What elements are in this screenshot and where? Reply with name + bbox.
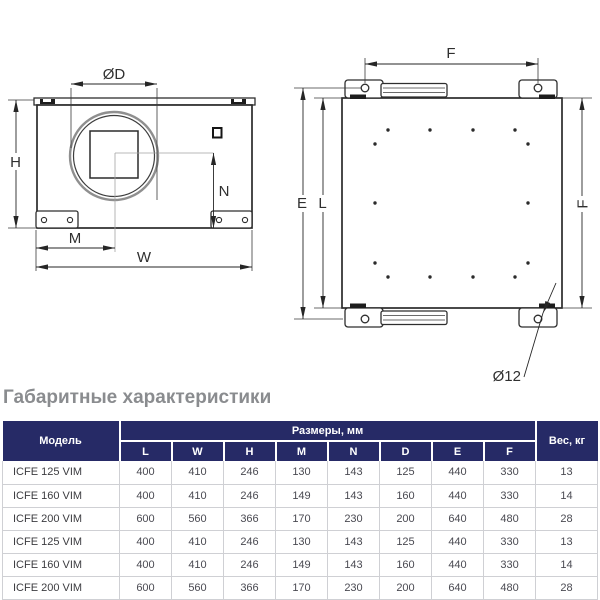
datasheet-page: ØD H N M W xyxy=(0,0,600,600)
value-cell-L: 400 xyxy=(120,553,172,576)
value-cell-W: 560 xyxy=(172,576,224,599)
table-row: ICFE 160 VIM40041024614914316044033014 xyxy=(3,484,598,507)
bracket-hole xyxy=(361,84,369,92)
side-view-drawing: ØD H N M W xyxy=(7,66,255,271)
value-cell-H: 246 xyxy=(224,553,276,576)
dim-column-header-D: D xyxy=(380,441,432,461)
value-cell-E: 440 xyxy=(432,461,484,484)
column-header-weight: Вес, кг xyxy=(536,421,598,461)
handle-top xyxy=(381,84,447,98)
dim-column-header-L: L xyxy=(120,441,172,461)
terminal-box xyxy=(213,128,222,138)
value-cell-H: 366 xyxy=(224,507,276,530)
front-view-drawing: F E L F xyxy=(294,45,592,385)
weight-cell: 28 xyxy=(536,576,598,599)
value-cell-F: 480 xyxy=(484,576,536,599)
weight-cell: 13 xyxy=(536,530,598,553)
value-cell-E: 440 xyxy=(432,484,484,507)
value-cell-N: 143 xyxy=(328,553,380,576)
value-cell-M: 130 xyxy=(276,461,328,484)
model-cell: ICFE 160 VIM xyxy=(3,484,120,507)
duct-opening xyxy=(90,131,138,178)
table-row: ICFE 125 VIM40041024613014312544033013 xyxy=(3,461,598,484)
value-cell-W: 410 xyxy=(172,484,224,507)
bracket-hole xyxy=(534,84,542,92)
model-cell: ICFE 125 VIM xyxy=(3,530,120,553)
value-cell-D: 160 xyxy=(380,553,432,576)
value-cell-W: 410 xyxy=(172,553,224,576)
technical-drawings: ØD H N M W xyxy=(0,0,600,388)
value-cell-M: 130 xyxy=(276,530,328,553)
value-cell-D: 125 xyxy=(380,461,432,484)
dim-label-n: N xyxy=(219,183,230,200)
value-cell-D: 200 xyxy=(380,507,432,530)
value-cell-N: 143 xyxy=(328,484,380,507)
value-cell-N: 230 xyxy=(328,507,380,530)
value-cell-M: 149 xyxy=(276,553,328,576)
table-row: ICFE 160 VIM40041024614914316044033014 xyxy=(3,553,598,576)
value-cell-F: 330 xyxy=(484,484,536,507)
value-cell-D: 125 xyxy=(380,530,432,553)
value-cell-E: 440 xyxy=(432,530,484,553)
dim-column-header-M: M xyxy=(276,441,328,461)
value-cell-M: 170 xyxy=(276,507,328,530)
value-cell-M: 149 xyxy=(276,484,328,507)
value-cell-F: 330 xyxy=(484,461,536,484)
value-cell-W: 560 xyxy=(172,507,224,530)
dim-label-f-top: F xyxy=(446,45,455,62)
value-cell-L: 600 xyxy=(120,507,172,530)
value-cell-H: 246 xyxy=(224,461,276,484)
value-cell-W: 410 xyxy=(172,530,224,553)
model-cell: ICFE 160 VIM xyxy=(3,553,120,576)
weight-cell: 14 xyxy=(536,484,598,507)
handle-bottom xyxy=(381,311,447,325)
table-body: ICFE 125 VIM40041024613014312544033013IC… xyxy=(3,461,598,599)
model-cell: ICFE 125 VIM xyxy=(3,461,120,484)
foot-hole xyxy=(216,217,221,222)
dim-column-header-W: W xyxy=(172,441,224,461)
value-cell-F: 330 xyxy=(484,553,536,576)
value-cell-D: 200 xyxy=(380,576,432,599)
dim-column-header-H: H xyxy=(224,441,276,461)
bracket-hole xyxy=(361,315,369,323)
section-title: Габаритные характеристики xyxy=(3,388,600,408)
column-header-dimensions-group: Размеры, мм xyxy=(120,421,536,441)
value-cell-L: 400 xyxy=(120,484,172,507)
weight-cell: 13 xyxy=(536,461,598,484)
dim-label-f-side: F xyxy=(575,199,592,208)
value-cell-F: 330 xyxy=(484,530,536,553)
value-cell-L: 400 xyxy=(120,461,172,484)
value-cell-W: 410 xyxy=(172,461,224,484)
dim-column-header-F: F xyxy=(484,441,536,461)
weight-cell: 14 xyxy=(536,553,598,576)
foot-hole xyxy=(67,217,72,222)
value-cell-H: 246 xyxy=(224,530,276,553)
value-cell-E: 440 xyxy=(432,553,484,576)
value-cell-N: 143 xyxy=(328,530,380,553)
dim-column-header-E: E xyxy=(432,441,484,461)
table-header: Модель Размеры, мм Вес, кг LWHMNDEF xyxy=(3,421,598,461)
value-cell-H: 366 xyxy=(224,576,276,599)
dim-label-width: W xyxy=(137,249,152,266)
unit-lid xyxy=(34,98,255,105)
value-cell-H: 246 xyxy=(224,484,276,507)
dim-label-diameter: ØD xyxy=(103,66,126,83)
table-row: ICFE 200 VIM60056036617023020064048028 xyxy=(3,507,598,530)
table-row: ICFE 125 VIM40041024613014312544033013 xyxy=(3,530,598,553)
dim-label-hole-diameter: Ø12 xyxy=(493,368,521,385)
table-row: ICFE 200 VIM60056036617023020064048028 xyxy=(3,576,598,599)
value-cell-E: 640 xyxy=(432,507,484,530)
value-cell-E: 640 xyxy=(432,576,484,599)
dimensions-table: Модель Размеры, мм Вес, кг LWHMNDEF ICFE… xyxy=(2,421,598,600)
value-cell-N: 230 xyxy=(328,576,380,599)
weight-cell: 28 xyxy=(536,507,598,530)
column-header-model: Модель xyxy=(3,421,120,461)
foot-hole xyxy=(242,217,247,222)
dim-label-m: M xyxy=(69,230,82,247)
value-cell-L: 400 xyxy=(120,530,172,553)
value-cell-D: 160 xyxy=(380,484,432,507)
dim-column-header-N: N xyxy=(328,441,380,461)
value-cell-N: 143 xyxy=(328,461,380,484)
dim-label-l: L xyxy=(318,195,326,212)
model-cell: ICFE 200 VIM xyxy=(3,576,120,599)
foot-hole xyxy=(41,217,46,222)
value-cell-F: 480 xyxy=(484,507,536,530)
model-cell: ICFE 200 VIM xyxy=(3,507,120,530)
dim-label-height: H xyxy=(10,154,21,171)
value-cell-L: 600 xyxy=(120,576,172,599)
dim-label-e: E xyxy=(297,195,307,212)
value-cell-M: 170 xyxy=(276,576,328,599)
